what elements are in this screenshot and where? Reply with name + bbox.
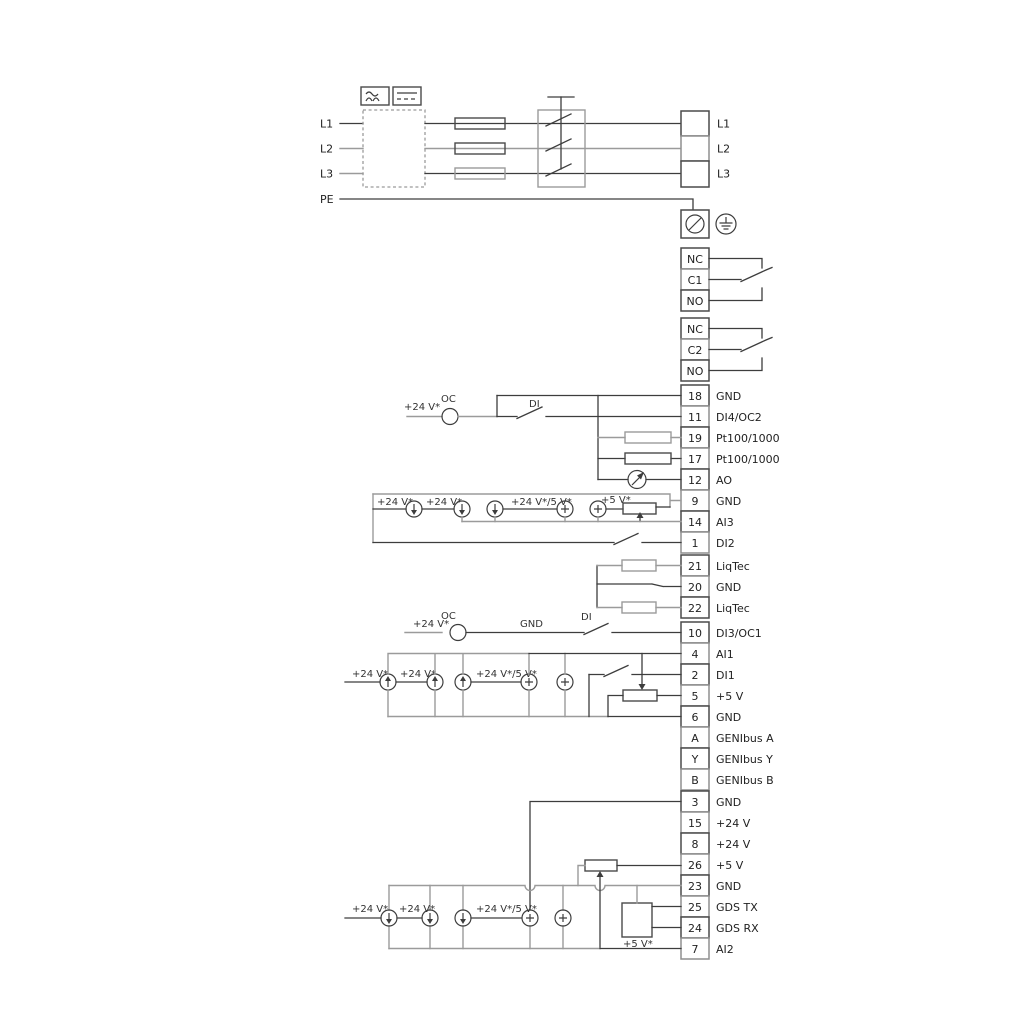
v24-label: +24 V* [404,402,440,413]
terminal-10-label: DI3/OC1 [716,627,762,640]
terminal-1-label: DI2 [716,537,735,550]
terminal-25-label: GDS TX [716,901,758,914]
phase-l2-left-label: L2 [320,143,333,156]
terminal-14-label: AI3 [716,516,734,529]
oc-label: OC [441,394,456,405]
terminal-23-label: GND [716,880,741,893]
di4-switch-icon [497,407,681,419]
terminal-21: 21 [688,560,702,573]
terminal-3: 3 [692,796,699,809]
terminal-b: B [691,774,699,787]
liqtec-sensor-icon [597,560,681,613]
mains-input-section: L1 L2 L3 PE [320,87,736,238]
src-24v-label: +24 V* [400,669,436,680]
terminal-19: 19 [688,432,702,445]
phase-l1-right-label: L1 [717,118,730,131]
gds-sensor-box: +5 V* [622,886,681,951]
terminal-23: 23 [688,880,702,893]
phase-l1-left-label: L1 [320,118,333,131]
open-collector-icon [442,409,458,425]
emc-filter-box [363,110,425,187]
potentiometer-icon [578,860,681,949]
terminal-20: 20 [688,581,702,594]
terminal-24: 24 [688,922,702,935]
terminal-10: 10 [688,627,702,640]
terminal-26-label: +5 V [716,859,744,872]
terminal-22: 22 [688,602,702,615]
terminal-y: Y [691,753,699,766]
relay1-c1-label: C1 [688,274,703,287]
terminal-15-label: +24 V [716,817,751,830]
terminal-3-label: GND [716,796,741,809]
liqtec-section: 21 20 22 LiqTec GND LiqTec [597,555,750,618]
terminal-5-label: +5 V [716,690,744,703]
terminal-15: 15 [688,817,702,830]
analog-output-meter-icon [598,471,681,489]
terminal-18: 18 [688,390,702,403]
src-24v-label: +24 V* [352,669,388,680]
relay2-no-label: NO [687,365,704,378]
relay1-nc-label: NC [687,253,703,266]
terminal-24-label: GDS RX [716,922,759,935]
pe-terminal-icon [681,210,709,238]
terminal-17-label: Pt100/1000 [716,453,780,466]
terminal-4-label: AI1 [716,648,734,661]
diagram-canvas: L1 L2 L3 PE [0,0,1024,1024]
phase-l2-right-label: L2 [717,143,730,156]
relay-2: NC C2 NO [681,318,772,381]
terminal-a-label: GENIbus A [716,732,774,745]
src-5v-label: +5 V* [601,495,631,506]
io-strip-bottom: 3 15 8 26 23 25 24 7 GND +24 V +24 V +5 … [345,791,759,959]
terminal-5: 5 [692,690,699,703]
ac-symbol-icon [361,87,389,105]
terminal-6-label: GND [716,711,741,724]
di1-switch-icon [589,666,681,677]
terminal-7-label: AI2 [716,943,734,956]
terminal-6: 6 [692,711,699,724]
terminal-8: 8 [692,838,699,851]
relay-contact-icon [709,329,772,371]
relay-contact-icon [709,259,772,301]
pe-wire [340,199,693,210]
terminal-17: 17 [688,453,702,466]
pt100-sensor-icon [598,432,681,464]
ai1-supply-circuit: +24 V* +24 V* +24 V*/5 V* [345,654,681,717]
terminal-21-label: LiqTec [716,560,750,573]
dc-symbol-icon [393,87,421,105]
di3-switch-icon [466,624,681,635]
relay1-no-label: NO [687,295,704,308]
src-24v-5v-label: +24 V*/5 V* [511,497,572,508]
relay2-nc-label: NC [687,323,703,336]
pe-left-label: PE [320,193,334,206]
gnd3-wire [530,802,681,911]
terminal-7: 7 [692,943,699,956]
mains-terminal-block: L1 L2 L3 [681,111,730,187]
terminal-a: A [691,732,699,745]
potentiometer-icon [608,654,681,717]
terminal-4: 4 [692,648,699,661]
io-strip-middle: 10 4 2 5 6 A Y B DI3/OC1 AI1 DI1 +5 V GN… [345,611,774,790]
terminal-b-label: GENIbus B [716,774,774,787]
phase-l3-right-label: L3 [717,168,730,181]
terminal-18-label: GND [716,390,741,403]
terminal-12-label: AO [716,474,732,487]
terminal-11: 11 [688,411,702,424]
di2-switch-icon [373,534,681,545]
terminal-9: 9 [692,495,699,508]
ai3-supply-circuit: +24 V* +24 V* +24 V*/5 V* +5 V* [373,494,681,545]
gnd-label: GND [520,619,543,630]
wiring-diagram: L1 L2 L3 PE [0,0,1024,1024]
terminal-y-label: GENIbus Y [716,753,773,766]
terminal-2: 2 [692,669,699,682]
terminal-12: 12 [688,474,702,487]
di-label: DI [581,612,592,623]
terminal-9-label: GND [716,495,741,508]
terminal-2-label: DI1 [716,669,735,682]
earth-ground-icon [716,214,736,234]
terminal-26: 26 [688,859,702,872]
terminal-22-label: LiqTec [716,602,750,615]
terminal-1: 1 [692,537,699,550]
src-24v-5v-label: +24 V*/5 V* [476,904,537,915]
terminal-25: 25 [688,901,702,914]
ai2-supply-circuit: +24 V* +24 V* +24 V*/5 V* [345,802,681,951]
relay2-c2-label: C2 [688,344,703,357]
terminal-19-label: Pt100/1000 [716,432,780,445]
src-24v-label: +24 V* [377,497,413,508]
terminal-14: 14 [688,516,702,529]
phase-l3-left-label: L3 [320,168,333,181]
terminal-11-label: DI4/OC2 [716,411,762,424]
terminal-20-label: GND [716,581,741,594]
io-strip-top: 18 11 19 17 12 9 14 1 GND DI4/OC2 Pt100/… [373,385,780,553]
relay-1: NC C1 NO [681,248,772,311]
oc-label: OC [441,611,456,622]
open-collector-icon [450,625,466,641]
terminal-8-label: +24 V [716,838,751,851]
